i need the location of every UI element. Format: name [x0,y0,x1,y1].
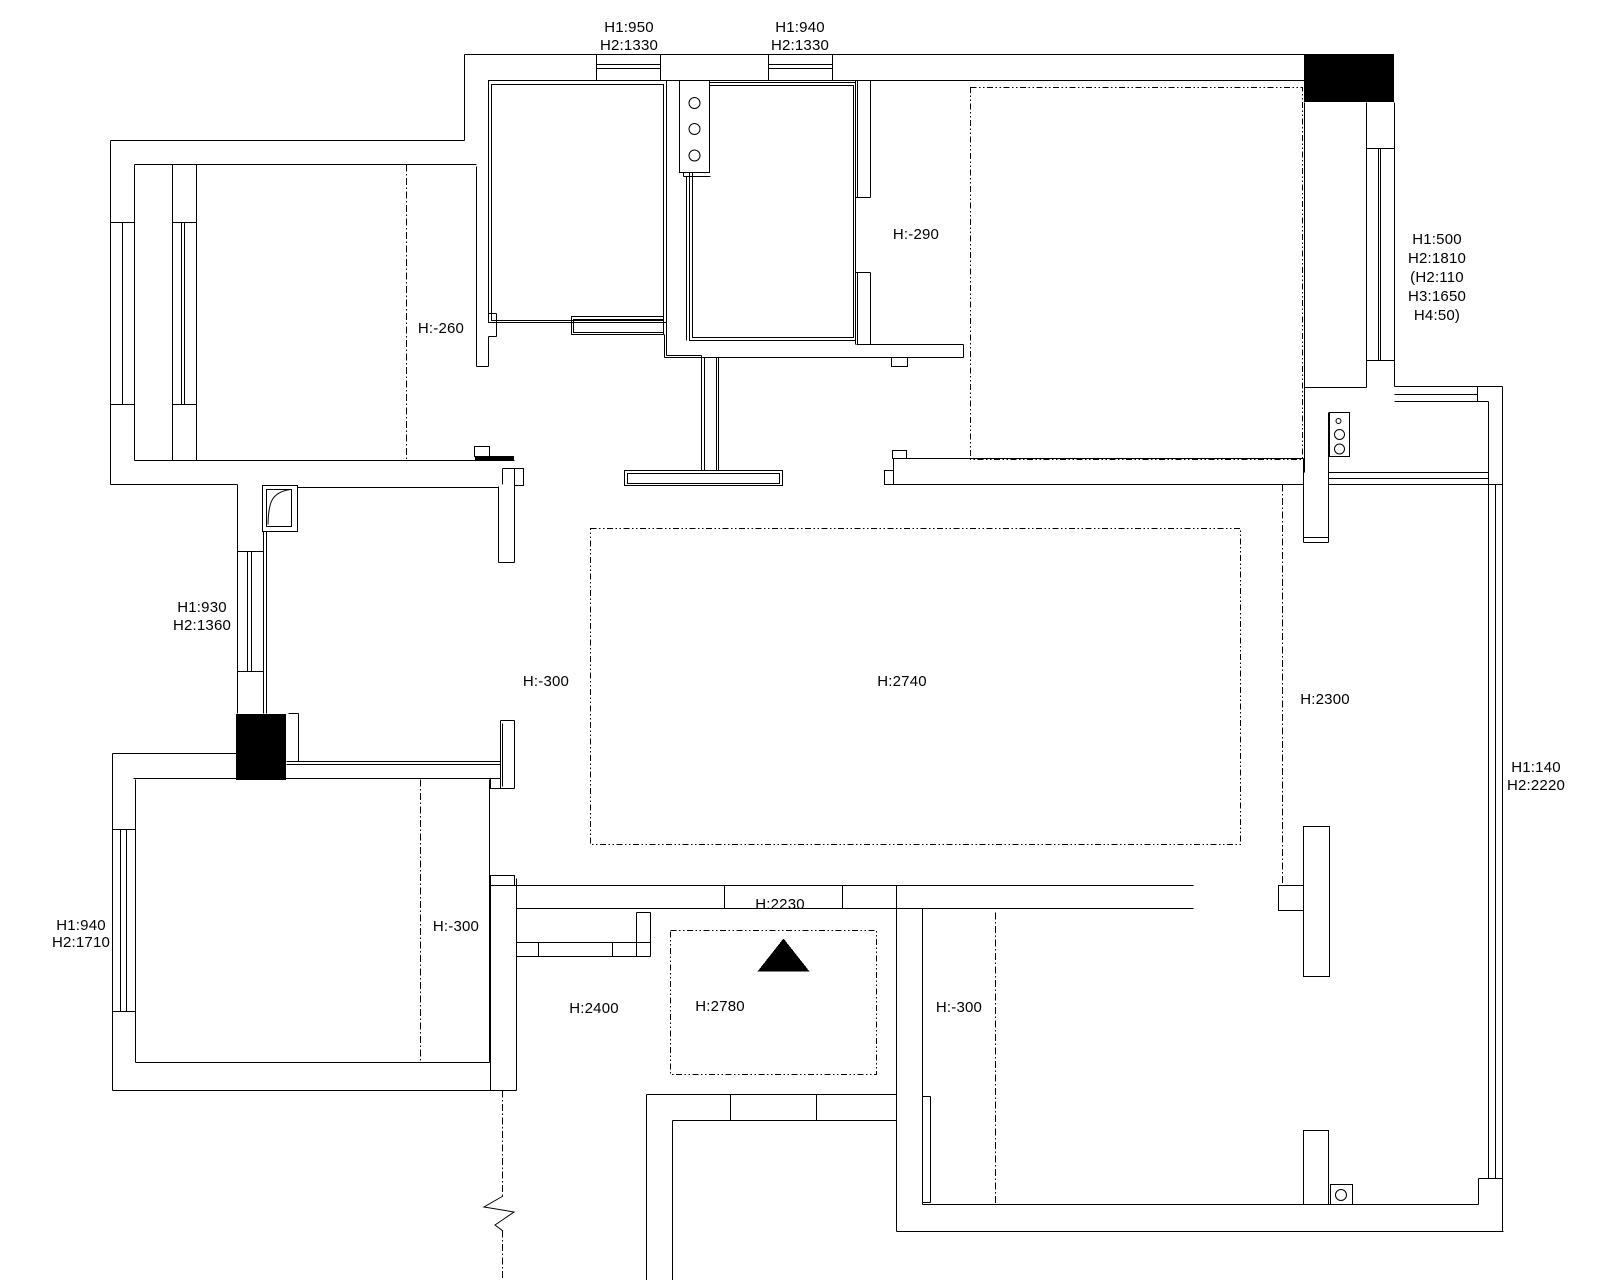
svg-text:H:-300: H:-300 [433,918,479,935]
svg-text:H2:1330: H2:1330 [600,37,658,54]
svg-text:H1:940: H1:940 [56,917,106,934]
svg-text:H:-300: H:-300 [523,673,569,690]
svg-text:H:-290: H:-290 [893,226,939,243]
svg-text:H:2300: H:2300 [1300,691,1350,708]
svg-text:H:-300: H:-300 [936,999,982,1016]
svg-text:H1:940: H1:940 [775,19,825,36]
svg-text:H1:930: H1:930 [177,599,227,616]
svg-text:H:-260: H:-260 [418,320,464,337]
svg-text:(H2:110: (H2:110 [1410,269,1464,286]
svg-text:H3:1650: H3:1650 [1408,288,1466,305]
svg-text:H1:500: H1:500 [1412,231,1462,248]
svg-text:H2:2220: H2:2220 [1507,777,1565,794]
svg-text:H2:1330: H2:1330 [771,37,829,54]
svg-text:H2:1710: H2:1710 [52,934,110,951]
svg-text:H:2780: H:2780 [695,998,745,1015]
svg-text:H:2740: H:2740 [877,673,927,690]
svg-text:H1:140: H1:140 [1511,759,1561,776]
svg-text:H:2230: H:2230 [755,896,805,913]
svg-text:H2:1360: H2:1360 [173,617,231,634]
svg-text:H1:950: H1:950 [604,19,654,36]
svg-text:H:2400: H:2400 [569,1000,619,1017]
svg-text:H4:50): H4:50) [1414,307,1460,324]
svg-text:H2:1810: H2:1810 [1408,250,1466,267]
